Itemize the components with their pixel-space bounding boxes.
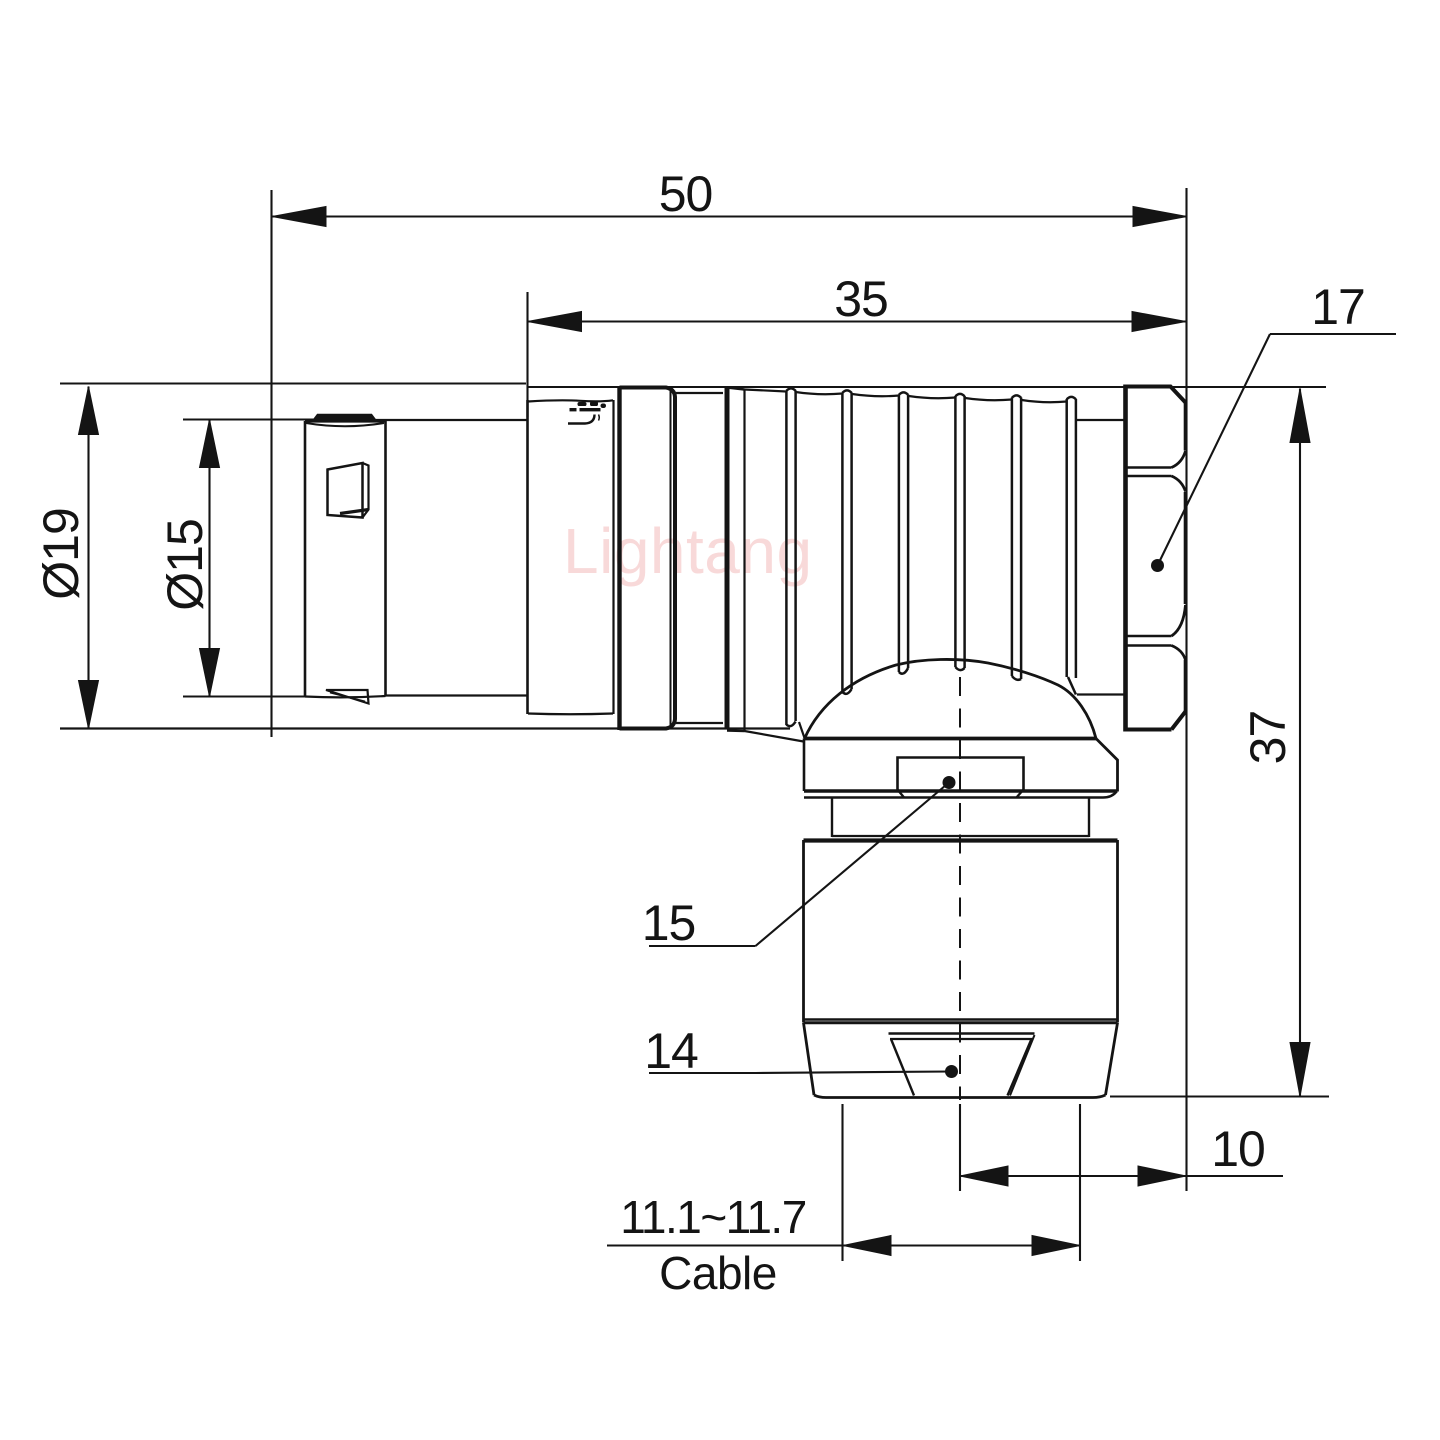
svg-text:10: 10 [1211, 1121, 1265, 1177]
svg-text:Ø15: Ø15 [157, 519, 213, 611]
svg-text:17: 17 [1311, 279, 1365, 335]
svg-text:37: 37 [1240, 711, 1296, 765]
svg-text:Lightang: Lightang [563, 515, 813, 587]
svg-text:50: 50 [659, 166, 713, 222]
svg-text:Ø19: Ø19 [33, 508, 89, 600]
svg-text:Cable: Cable [659, 1247, 777, 1299]
svg-text:15: 15 [642, 895, 696, 951]
svg-text:11.1~11.7: 11.1~11.7 [620, 1191, 806, 1243]
svg-text:35: 35 [834, 271, 888, 327]
svg-text:14: 14 [644, 1023, 698, 1079]
